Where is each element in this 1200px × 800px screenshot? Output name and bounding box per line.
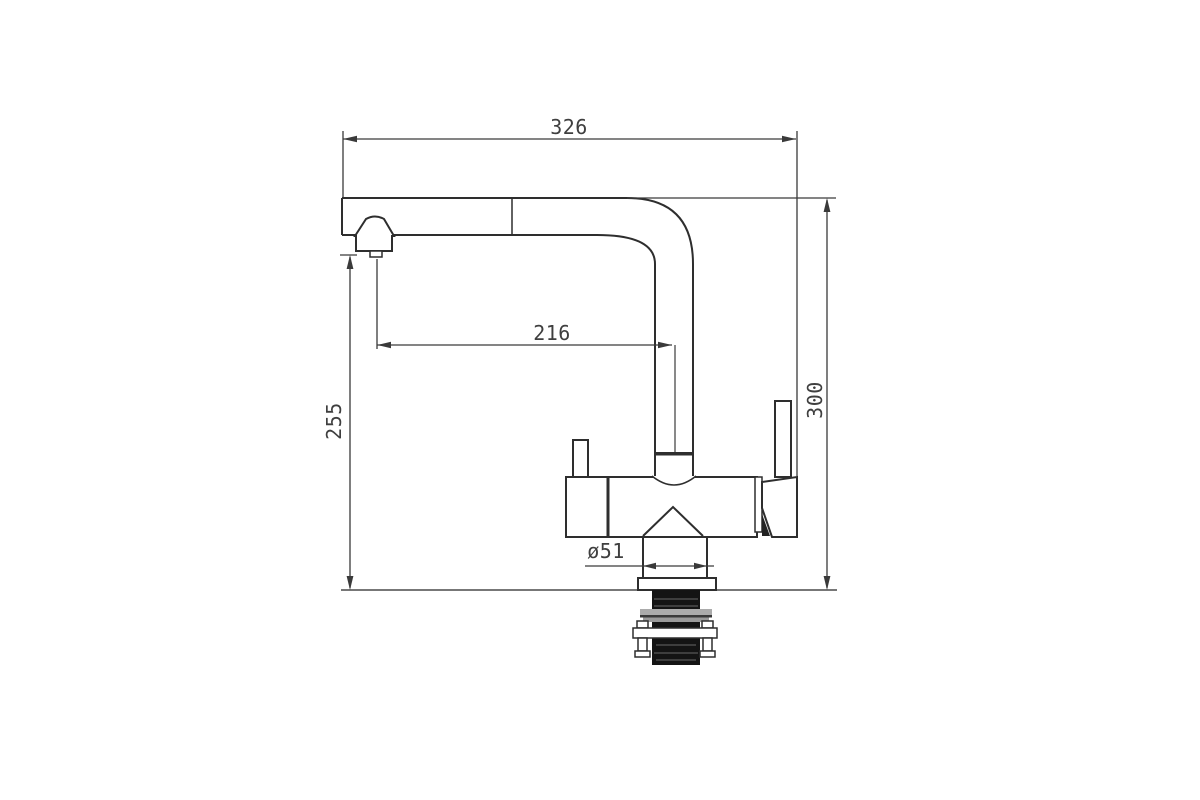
spout-and-pipe: [342, 198, 696, 485]
dim-51-arrow-left: [643, 563, 656, 569]
base-flange: [638, 578, 716, 590]
pull-out-spray-head: [355, 217, 394, 258]
lock-nut-upper: [640, 609, 712, 615]
left-handle-lever: [573, 440, 588, 477]
right-bolt-foot: [700, 651, 715, 657]
dimension-326: 326: [343, 115, 797, 476]
faucet-drawing-svg: 326 216 255 300 ø51: [0, 0, 1200, 800]
right-handle-spacer: [755, 477, 762, 532]
dim-255-arrow-top: [347, 255, 354, 269]
right-bolt-head: [702, 621, 713, 628]
left-bolt-foot: [635, 651, 650, 657]
dim-216-arrow-left: [377, 342, 391, 348]
left-bolt-head: [637, 621, 648, 628]
dimension-label-diameter-51: ø51: [587, 539, 625, 563]
dimension-label-300: 300: [803, 381, 827, 419]
dim-51-arrow-right: [694, 563, 707, 569]
body-block: [566, 477, 757, 537]
dim-300-arrow-top: [824, 198, 831, 212]
dimension-255: 255: [322, 255, 357, 590]
dim-326-arrow-left: [343, 136, 357, 142]
left-handle: [573, 440, 588, 477]
mounting-hardware: [633, 590, 717, 665]
right-bolt-shaft: [703, 638, 712, 651]
dimension-diameter-51: ø51: [585, 539, 714, 569]
dimension-label-255: 255: [322, 402, 346, 440]
dim-326-arrow-right: [782, 136, 796, 142]
base-neck: [638, 537, 716, 590]
spray-nozzle: [370, 251, 382, 257]
spray-head-outline: [355, 217, 394, 252]
faucet-body: [566, 477, 757, 537]
right-handle: [755, 401, 797, 537]
dimension-label-326: 326: [550, 115, 588, 139]
pipe-joint-band: [654, 452, 694, 456]
lock-nut-edge: [640, 615, 712, 618]
dimension-label-216: 216: [533, 321, 571, 345]
right-handle-lever: [775, 401, 791, 477]
dim-255-arrow-bottom: [347, 576, 354, 590]
mounting-bracket-bar: [633, 628, 717, 638]
lock-nut-lower: [643, 618, 709, 623]
dimension-216: 216: [377, 259, 672, 349]
left-bolt-shaft: [638, 638, 647, 651]
right-handle-block: [762, 477, 797, 537]
dim-300-arrow-bottom: [824, 576, 831, 590]
dim-216-arrow-right: [658, 342, 672, 348]
technical-drawing-canvas: 326 216 255 300 ø51: [0, 0, 1200, 800]
